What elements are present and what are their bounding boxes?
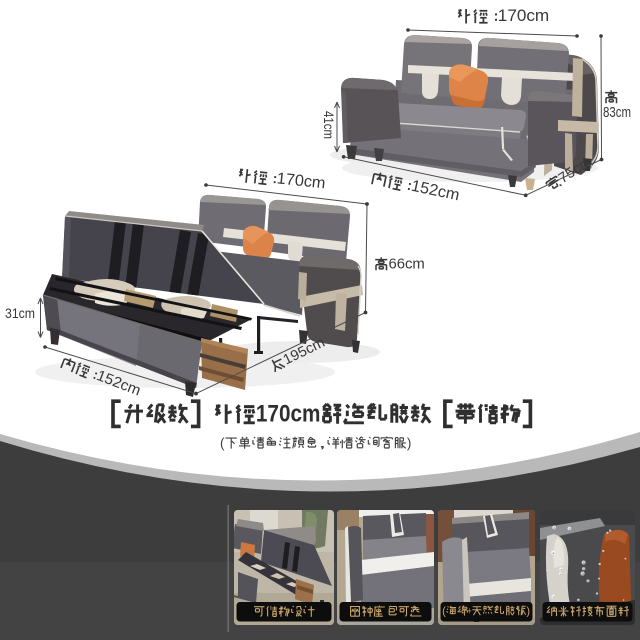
svg-text:170cm: 170cm [498, 6, 549, 25]
svg-text:): ) [407, 436, 412, 451]
svg-text:170cm: 170cm [256, 400, 321, 427]
svg-text:41cm: 41cm [321, 111, 336, 139]
svg-text:(: ( [442, 606, 446, 618]
svg-text:31cm: 31cm [5, 306, 35, 321]
svg-text:66cm: 66cm [389, 256, 425, 272]
svg-text:): ) [526, 606, 530, 618]
svg-text:+: + [468, 606, 472, 618]
svg-text:83cm: 83cm [603, 105, 631, 121]
svg-text:,: , [318, 436, 326, 451]
svg-text:(: ( [220, 436, 225, 451]
